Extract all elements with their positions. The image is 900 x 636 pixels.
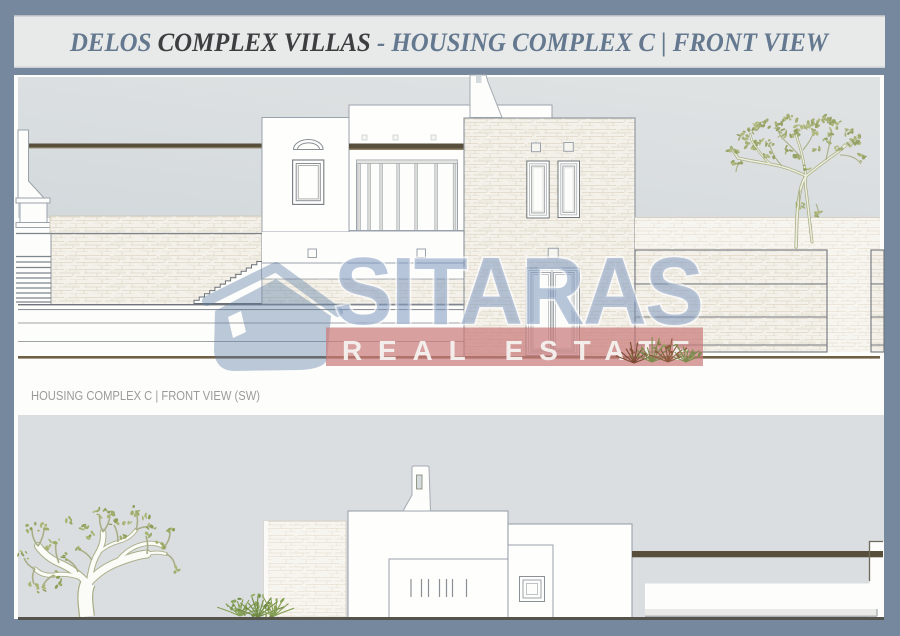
svg-text:DELOS COMPLEX VILLAS - HOUSING: DELOS COMPLEX VILLAS - HOUSING COMPLEX C… — [69, 28, 830, 57]
svg-text:HOUSING COMPLEX C | FRONT VI: HOUSING COMPLEX C | FRONT VIEW (SW) — [31, 388, 260, 403]
